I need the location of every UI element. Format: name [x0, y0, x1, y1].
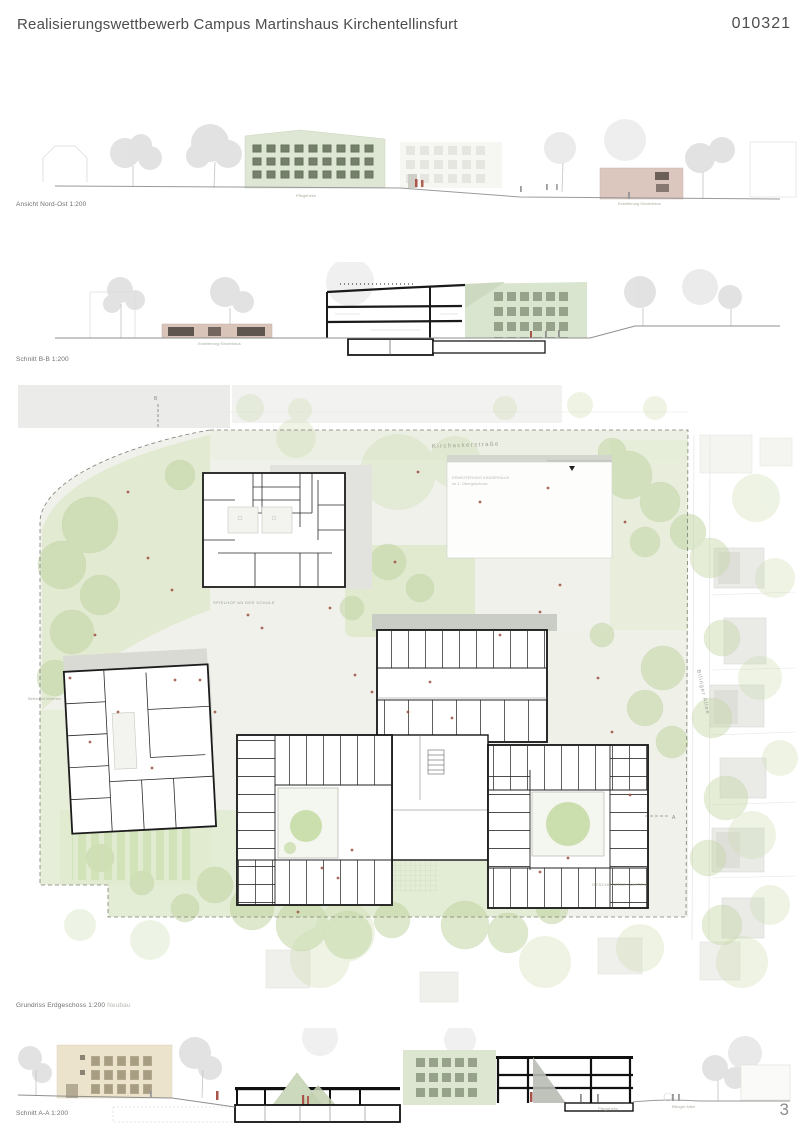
bestand-label-2: im 1. Obergeschoss [452, 481, 488, 486]
school-building: SPIELHOF AN DER SCHULE [203, 465, 372, 605]
section-bb-green-building [465, 282, 587, 338]
garden-label: GESCHÜTZTER GARTEN [592, 882, 647, 887]
section-bb-caption: Schnitt B-B 1:200 [16, 356, 69, 363]
elevation-north-east-drawing: Pflegeheim Erweiterung Kinderhaus [0, 118, 806, 218]
pflegeheim-label: Pflegeheim [296, 193, 317, 198]
competition-board: Realisierungswettbewerb Campus Martinsha… [0, 0, 806, 1140]
site-plan-caption: Grundriss Erdgeschoss 1:200 Neubau [16, 1002, 131, 1009]
wohnen-label: Betreutes Wohnen [28, 696, 61, 701]
section-aa-cut-right [496, 1056, 680, 1111]
section-aa-drawing: Pflegeheim Bilinger Allee [0, 1028, 806, 1140]
section-bb-low-building [162, 324, 272, 338]
garden-plots [72, 826, 190, 880]
ground-line-left [18, 1095, 235, 1107]
erweiterung-label: Erweiterung Kinderhaus [618, 201, 661, 206]
section-aa-green-facade [403, 1050, 496, 1105]
section-aa-caption: Schnitt A-A 1:200 [16, 1110, 68, 1117]
aa-pflegeheim-label: Pflegeheim [598, 1106, 619, 1111]
project-code: 010321 [732, 15, 791, 33]
section-aa-cut-left [235, 1073, 400, 1122]
board-title: Realisierungswettbewerb Campus Martinsha… [17, 16, 458, 33]
aa-allee-label: Bilinger Allee [672, 1104, 696, 1109]
bestand-building: ERWEITERUNG KINDERHAUS im 1. Obergeschos… [447, 455, 612, 558]
west-building [63, 648, 218, 833]
site-plan-drawing: ERWEITERUNG KINDERHAUS im 1. Obergeschos… [0, 380, 806, 1010]
page-number: 3 [780, 1100, 789, 1120]
elevation-ne-caption: Ansicht Nord-Ost 1:200 [16, 201, 86, 208]
bb-low-label: Erweiterung Kinderhaus [198, 341, 241, 346]
school-label: SPIELHOF AN DER SCHULE [213, 600, 275, 605]
section-bb-drawing: Erweiterung Kinderhaus [0, 262, 806, 370]
bestand-label-1: ERWEITERUNG KINDERHAUS [452, 475, 510, 480]
